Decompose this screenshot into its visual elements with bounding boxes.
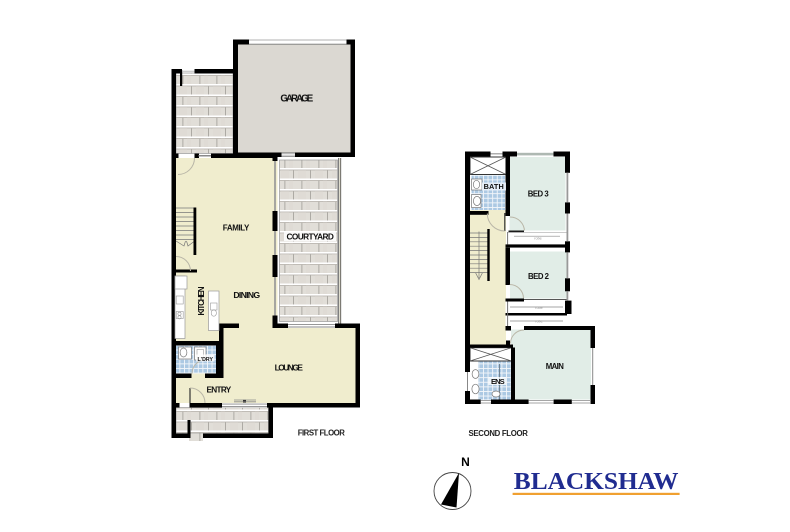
svg-text:SECOND FLOOR: SECOND FLOOR xyxy=(469,429,529,438)
svg-text:KITCHEN: KITCHEN xyxy=(197,286,206,315)
svg-text:robe: robe xyxy=(534,237,542,241)
svg-text:robe: robe xyxy=(535,306,543,310)
svg-text:robe: robe xyxy=(535,320,543,324)
svg-text:DINING: DINING xyxy=(233,290,260,300)
svg-text:MAIN: MAIN xyxy=(546,362,565,371)
svg-text:BED 2: BED 2 xyxy=(528,272,550,281)
svg-text:COURTYARD: COURTYARD xyxy=(287,232,334,242)
svg-text:ENTRY: ENTRY xyxy=(207,386,232,395)
svg-text:GARAGE: GARAGE xyxy=(280,94,313,105)
svg-text:BLACKSHAW: BLACKSHAW xyxy=(514,468,679,495)
svg-text:N: N xyxy=(461,455,470,469)
svg-text:BATH: BATH xyxy=(484,182,504,191)
svg-text:L'DRY: L'DRY xyxy=(198,357,214,363)
svg-text:LOUNGE: LOUNGE xyxy=(275,362,304,372)
svg-text:BED 3: BED 3 xyxy=(528,190,550,199)
svg-text:FAMILY: FAMILY xyxy=(223,223,250,232)
svg-text:FIRST FLOOR: FIRST FLOOR xyxy=(298,429,346,438)
svg-text:ENS: ENS xyxy=(491,377,505,386)
